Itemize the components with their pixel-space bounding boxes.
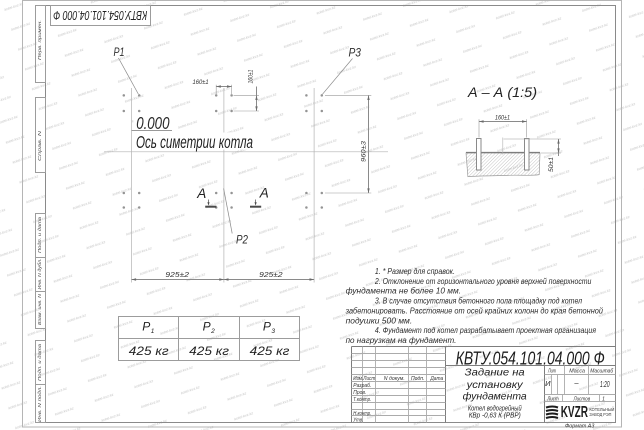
svg-text:Пров.: Пров. bbox=[353, 390, 366, 396]
svg-text:Изм.Лист: Изм.Лист bbox=[353, 376, 375, 382]
svg-text:по нагрузкам на фундамент.: по нагрузкам на фундамент. bbox=[346, 336, 457, 345]
svg-text:КВТУ.054.101.04.000 Ф: КВТУ.054.101.04.000 Ф bbox=[456, 349, 605, 369]
svg-text:подушки 500 мм.: подушки 500 мм. bbox=[346, 317, 413, 326]
svg-text:Масса: Масса bbox=[569, 369, 585, 375]
svg-text:Разраб.: Разраб. bbox=[353, 383, 371, 389]
svg-text:Лист: Лист bbox=[546, 396, 558, 402]
svg-text:1: 1 bbox=[151, 328, 155, 335]
svg-text:160±1: 160±1 bbox=[248, 70, 255, 84]
svg-text:KVZR: KVZR bbox=[561, 404, 588, 421]
svg-text:Дата: Дата bbox=[429, 376, 443, 382]
svg-text:Р: Р bbox=[142, 320, 150, 334]
svg-text:установку: установку bbox=[466, 380, 524, 391]
svg-text:Формат А3: Формат А3 bbox=[565, 424, 594, 430]
svg-text:Утв.: Утв. bbox=[353, 418, 363, 424]
svg-text:Перв. примен.: Перв. примен. bbox=[37, 20, 43, 60]
svg-text:Листов: Листов bbox=[573, 396, 591, 402]
svg-text:160±1: 160±1 bbox=[495, 115, 510, 122]
svg-text:3. В случае отсутствия бетонно: 3. В случае отсутствия бетонного пола пл… bbox=[375, 297, 583, 306]
svg-text:А – А (1:5): А – А (1:5) bbox=[467, 85, 537, 100]
svg-text:1: 1 bbox=[602, 396, 605, 402]
svg-text:Н.контр.: Н.контр. bbox=[353, 411, 371, 417]
svg-text:Задание на: Задание на bbox=[465, 367, 525, 378]
svg-text:Р: Р bbox=[203, 320, 211, 334]
svg-text:Лит: Лит bbox=[547, 369, 556, 375]
svg-text:425 кг: 425 кг bbox=[250, 344, 290, 358]
svg-text:4. Фундамент под котел разраба: 4. Фундамент под котел разрабатывает про… bbox=[375, 326, 597, 335]
svg-text:А: А bbox=[196, 186, 206, 201]
svg-text:Подп. и дата: Подп. и дата bbox=[37, 344, 43, 381]
svg-text:Масштаб: Масштаб bbox=[590, 369, 613, 375]
svg-text:425 кг: 425 кг bbox=[129, 344, 169, 358]
svg-text:фундамента: фундамента bbox=[463, 391, 527, 403]
svg-text:50±1: 50±1 bbox=[548, 157, 555, 172]
svg-text:960±3: 960±3 bbox=[361, 141, 368, 162]
svg-text:Р1: Р1 bbox=[114, 45, 125, 59]
svg-text:Р3: Р3 bbox=[349, 46, 362, 60]
svg-text:925±2: 925±2 bbox=[165, 272, 189, 279]
svg-text:Инв. N дубл.: Инв. N дубл. bbox=[37, 259, 43, 290]
svg-text:Подп. и дата: Подп. и дата bbox=[37, 217, 43, 253]
svg-text:0.000: 0.000 bbox=[136, 113, 170, 133]
svg-text:Инв. N подл.: Инв. N подл. bbox=[37, 386, 43, 422]
svg-text:КВр -0,63 К (РВР): КВр -0,63 К (РВР) bbox=[469, 412, 521, 419]
svg-text:фундамента не более 10 мм.: фундамента не более 10 мм. bbox=[346, 286, 461, 295]
svg-text:425 кг: 425 кг bbox=[189, 344, 229, 358]
svg-text:160±1: 160±1 bbox=[193, 79, 209, 86]
svg-text:КВТУ.054.101.04.000 Ф: КВТУ.054.101.04.000 Ф bbox=[53, 8, 147, 22]
svg-text:И: И bbox=[545, 379, 551, 388]
svg-text:2. Отклонение от горизонтально: 2. Отклонение от горизонтального уровня … bbox=[374, 277, 592, 286]
svg-text:1:20: 1:20 bbox=[600, 380, 610, 389]
svg-text:–: – bbox=[573, 379, 579, 388]
svg-text:Взам. инв. N: Взам. инв. N bbox=[37, 293, 43, 325]
svg-text:Подп.: Подп. bbox=[411, 376, 425, 382]
svg-text:Котел водогрейный: Котел водогрейный bbox=[468, 404, 522, 412]
svg-text:ЗАВОД РЭП: ЗАВОД РЭП bbox=[589, 412, 611, 418]
svg-text:N докум.: N докум. bbox=[384, 376, 405, 382]
svg-text:Справ. N: Справ. N bbox=[37, 130, 43, 161]
svg-text:А: А bbox=[259, 186, 269, 201]
svg-text:Р2: Р2 bbox=[236, 233, 248, 247]
svg-text:забетонировать. Расстояние от: забетонировать. Расстояние от осей крайн… bbox=[345, 306, 604, 315]
svg-text:925±2: 925±2 bbox=[259, 272, 283, 279]
svg-text:2: 2 bbox=[210, 328, 215, 335]
svg-text:1. * Размер для справок.: 1. * Размер для справок. bbox=[375, 267, 455, 276]
svg-text:Ось симетрии котла: Ось симетрии котла bbox=[136, 132, 253, 152]
svg-text:Р: Р bbox=[263, 320, 271, 334]
svg-text:3: 3 bbox=[271, 328, 275, 335]
svg-text:Т.контр.: Т.контр. bbox=[353, 397, 371, 403]
